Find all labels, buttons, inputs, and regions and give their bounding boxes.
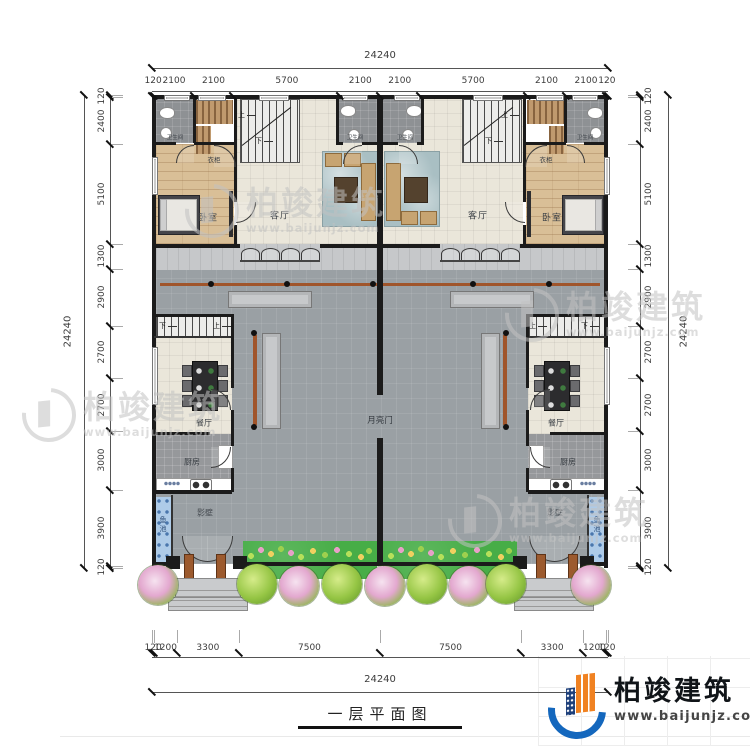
- stair-label-up: 上: [501, 110, 519, 120]
- veranda-walkway: [262, 333, 281, 429]
- tv-cabinet-icon: [229, 191, 233, 237]
- ext: [608, 630, 609, 643]
- dim-total-bottom-line: [152, 692, 608, 693]
- dim-total-left: 24240: [58, 95, 78, 568]
- ext: [628, 144, 639, 145]
- dim-line: [152, 91, 608, 92]
- ext: [112, 144, 123, 145]
- threshold: [440, 260, 520, 262]
- wall: [523, 97, 526, 202]
- column-icon: [546, 281, 552, 287]
- stair-label-up: 上: [238, 110, 256, 120]
- ext: [112, 490, 123, 491]
- room-label-moon-gate: 月亮门: [367, 414, 393, 426]
- room-label-living: 客厅: [270, 209, 290, 222]
- window: [604, 347, 610, 405]
- dim-label: 7500: [298, 643, 321, 653]
- dim-total-bottom: 24240: [152, 674, 608, 685]
- wall: [421, 97, 424, 143]
- stair-label-down: 下: [581, 321, 599, 331]
- stair-label-down: 下: [159, 321, 177, 331]
- wall: [154, 244, 240, 248]
- brand-logo: 柏竣建筑 www.baijunjz.com: [548, 672, 750, 730]
- room-label-kitchen: 厨房: [184, 457, 200, 468]
- dim-label: 5700: [462, 76, 485, 86]
- chair-icon: [218, 365, 228, 377]
- dim-label: 2100: [349, 76, 372, 86]
- column-icon: [470, 281, 476, 287]
- ext: [154, 630, 155, 643]
- bed-mattress: [565, 199, 597, 231]
- wall: [154, 336, 234, 338]
- wall: [550, 432, 606, 435]
- sofa-icon: [386, 163, 401, 221]
- window: [152, 157, 158, 195]
- ext: [380, 630, 381, 643]
- tree-icon: [486, 564, 526, 604]
- stair-label-up: 上: [529, 321, 547, 331]
- wall: [564, 97, 567, 143]
- bed-mattress: [165, 199, 197, 231]
- room-label-screen-wall: 影壁: [547, 508, 563, 519]
- ext: [112, 97, 123, 98]
- dim-label: 3000: [97, 449, 107, 472]
- sofa-icon: [361, 163, 376, 221]
- ext: [112, 269, 123, 270]
- window: [152, 347, 158, 405]
- wall: [154, 314, 234, 317]
- ext: [628, 244, 639, 245]
- room-label-wardrobe: 衣柜: [208, 154, 221, 164]
- veranda-walkway: [228, 291, 312, 308]
- dim-total-top-line: [152, 68, 608, 69]
- dim-label: 2100: [388, 76, 411, 86]
- brand-url: www.baijunjz.com: [614, 709, 750, 724]
- column-icon: [503, 424, 509, 430]
- room-label-bathroom: 卫生间: [347, 133, 364, 141]
- folding-door-leaf: [481, 248, 500, 260]
- folding-door-leaf: [461, 248, 480, 260]
- dim-label: 3900: [97, 516, 107, 539]
- staircase-right: [462, 99, 522, 163]
- column-icon: [284, 281, 290, 287]
- dim-label: 7500: [439, 643, 462, 653]
- folding-door-leaf: [441, 248, 460, 260]
- dim-total-right-label: 24240: [679, 316, 690, 348]
- toilet-icon: [587, 107, 603, 119]
- folding-door-leaf: [301, 248, 320, 260]
- dim-label: 120: [97, 558, 107, 575]
- wall: [154, 490, 232, 494]
- wall: [526, 468, 529, 492]
- folding-door-leaf: [501, 248, 520, 260]
- dim-label: 2400: [97, 109, 107, 132]
- dim-label: 120: [644, 88, 654, 105]
- dim-label: 2700: [97, 341, 107, 364]
- wall: [526, 336, 606, 338]
- dim-line: [110, 95, 111, 568]
- chair-icon: [182, 380, 192, 392]
- wall: [528, 490, 606, 494]
- veranda-walkway: [481, 333, 500, 429]
- wardrobe-left: [196, 100, 233, 124]
- dim-line: [640, 95, 641, 568]
- dim-col-right: 12024005100130029002700270030003900120: [634, 95, 654, 568]
- dim-label: 5700: [275, 76, 298, 86]
- brand-name: 柏竣建筑: [614, 678, 750, 706]
- pergola-beam: [160, 283, 378, 286]
- wall: [520, 244, 606, 248]
- brand-logo-icon: [548, 672, 606, 730]
- chair-icon: [182, 365, 192, 377]
- counter-dots-icon: [164, 481, 180, 486]
- flower-cluster-icon: [243, 544, 377, 564]
- dim-label: 3300: [196, 643, 219, 653]
- tick: [376, 649, 384, 657]
- dim-label: 5100: [97, 182, 107, 205]
- chair-icon: [570, 380, 580, 392]
- tick: [235, 649, 243, 657]
- ext: [239, 630, 240, 643]
- chair-icon: [570, 395, 580, 407]
- room-label-bedroom: 卧室: [198, 211, 218, 224]
- coffee-table-icon: [404, 177, 428, 203]
- coffee-table-icon: [334, 177, 358, 203]
- ext: [112, 378, 123, 379]
- dim-label: 2100: [163, 76, 186, 86]
- tree-icon: [279, 566, 319, 606]
- dim-row-bottom: 120120033007500750033001200120: [152, 643, 608, 661]
- tree-icon: [365, 566, 405, 606]
- wall: [234, 97, 237, 202]
- logo-building-windows-icon: [566, 687, 575, 715]
- wall: [336, 97, 339, 143]
- wall: [378, 142, 398, 145]
- tree-icon: [449, 566, 489, 606]
- tree-icon: [322, 564, 362, 604]
- dim-row-top: 12021002100570021002100570021002100120: [152, 76, 608, 96]
- page-title: 一层平面图: [250, 703, 510, 724]
- ext: [628, 568, 639, 569]
- ext: [628, 431, 639, 432]
- wall: [320, 244, 379, 248]
- floor-plan-drawing: 卫生间 卫生间 卫生间 卫生间 衣柜 衣柜 卧室 卧室 客厅 客厅 餐厅 餐厅 …: [152, 95, 608, 568]
- tree-icon: [237, 564, 277, 604]
- ext: [112, 568, 123, 569]
- ext: [521, 630, 522, 643]
- ext: [112, 566, 123, 567]
- dim-label: 2100: [202, 76, 225, 86]
- pergola-post: [503, 335, 507, 425]
- fence-wall: [239, 562, 521, 566]
- wall: [523, 225, 526, 246]
- stair-label-up: 上: [213, 321, 231, 331]
- folding-door-leaf: [281, 248, 300, 260]
- folding-door-leaf: [241, 248, 260, 260]
- dim-total-top: 24240: [152, 50, 608, 61]
- ext: [628, 326, 639, 327]
- wall: [234, 225, 237, 246]
- dim-label: 1300: [97, 245, 107, 268]
- ext: [112, 326, 123, 327]
- chair-icon: [570, 365, 580, 377]
- room-label-screen-wall: 影壁: [197, 508, 213, 519]
- wall: [584, 142, 606, 145]
- floor-plan-sheet: 24240 1202100210057002100210057002100210…: [0, 0, 750, 750]
- wall: [526, 410, 529, 446]
- wardrobe-right: [527, 100, 564, 124]
- column-icon: [251, 330, 257, 336]
- room-label-bathroom: 卫生间: [577, 133, 594, 141]
- dim-col-left: 12024005100130029002700270030003900120: [96, 95, 116, 568]
- room-label-bedroom: 卧室: [542, 211, 562, 224]
- wall: [193, 97, 196, 143]
- dim-line: [152, 657, 608, 658]
- wall: [231, 468, 234, 492]
- column-icon: [503, 330, 509, 336]
- tv-cabinet-icon: [527, 191, 531, 237]
- column-icon: [370, 281, 376, 287]
- dim-total-left-line: [84, 95, 85, 568]
- title-underline: [298, 726, 462, 729]
- dim-label: 120: [644, 558, 654, 575]
- wall: [231, 314, 234, 388]
- room-label-fish-pond: 鱼池: [592, 516, 602, 534]
- room-label-wardrobe: 衣柜: [540, 154, 553, 164]
- dim-label: 1300: [644, 245, 654, 268]
- column-icon: [251, 424, 257, 430]
- toilet-icon: [159, 107, 175, 119]
- room-label-bathroom: 卫生间: [397, 133, 414, 141]
- dim-label: 2900: [97, 286, 107, 309]
- dim-label: 2900: [644, 286, 654, 309]
- tree-icon: [138, 565, 178, 605]
- window: [604, 157, 610, 195]
- bed-pillow: [595, 199, 602, 231]
- room-label-living: 客厅: [468, 209, 488, 222]
- dim-label: 5100: [644, 182, 654, 205]
- dim-label: 2700: [644, 393, 654, 416]
- entry-steps: [168, 597, 248, 611]
- ext: [177, 630, 178, 643]
- ext: [628, 490, 639, 491]
- tree-icon: [571, 565, 611, 605]
- dim-label: 2100: [575, 76, 598, 86]
- stair-label-down: 下: [485, 136, 503, 146]
- wardrobe-left-strip: [196, 126, 211, 154]
- column-icon: [208, 281, 214, 287]
- ext: [583, 630, 584, 643]
- ext: [112, 431, 123, 432]
- pergola-beam: [382, 283, 600, 286]
- bed-pillow: [160, 199, 167, 231]
- ext: [628, 97, 639, 98]
- wall: [154, 432, 210, 435]
- dim-label: 120: [598, 76, 615, 86]
- ext: [628, 378, 639, 379]
- dim-label: 3900: [644, 516, 654, 539]
- wall: [231, 410, 234, 446]
- dim-label: 120: [145, 76, 162, 86]
- chair-icon: [534, 365, 544, 377]
- tree-icon: [407, 564, 447, 604]
- veranda-walkway: [450, 291, 534, 308]
- tick: [517, 649, 525, 657]
- ext: [628, 269, 639, 270]
- counter-dots-icon: [580, 481, 596, 486]
- dim-total-right: 24240: [674, 95, 694, 568]
- threshold: [240, 260, 320, 262]
- dim-total-right-line: [668, 95, 669, 568]
- dim-label: 2400: [644, 109, 654, 132]
- room-label-bathroom: 卫生间: [167, 133, 184, 141]
- folding-door-leaf: [261, 248, 280, 260]
- folding-door: [440, 248, 520, 260]
- stool-icon: [420, 211, 437, 225]
- party-wall: [377, 438, 383, 564]
- wall: [526, 314, 606, 317]
- dim-label: 2100: [535, 76, 558, 86]
- flower-cluster-icon: [383, 544, 517, 564]
- wardrobe-right-strip: [549, 126, 564, 154]
- dim-label: 2700: [97, 393, 107, 416]
- pergola-post: [253, 335, 257, 425]
- dim-label: 3300: [541, 643, 564, 653]
- ext: [112, 95, 123, 96]
- dim-label: 3000: [644, 449, 654, 472]
- ext: [606, 630, 607, 643]
- room-label-dining: 餐厅: [196, 418, 212, 429]
- dim-label: 2700: [644, 341, 654, 364]
- stair-label-down: 下: [255, 136, 273, 146]
- wall: [381, 244, 440, 248]
- ext: [112, 244, 123, 245]
- stool-icon: [325, 153, 342, 167]
- chair-icon: [182, 395, 192, 407]
- ext: [152, 630, 153, 643]
- room-label-dining: 餐厅: [548, 418, 564, 429]
- toilet-icon: [406, 105, 422, 117]
- staircase-left: [240, 99, 300, 163]
- stool-icon: [401, 211, 418, 225]
- room-label-fish-pond: 鱼池: [158, 516, 168, 534]
- dim-label: 120: [97, 88, 107, 105]
- room-label-kitchen: 厨房: [560, 457, 576, 468]
- toilet-icon: [340, 105, 356, 117]
- dim-total-left-label: 24240: [63, 316, 74, 348]
- logo-building-icon: [576, 673, 595, 713]
- folding-door: [240, 248, 320, 260]
- wall: [154, 142, 176, 145]
